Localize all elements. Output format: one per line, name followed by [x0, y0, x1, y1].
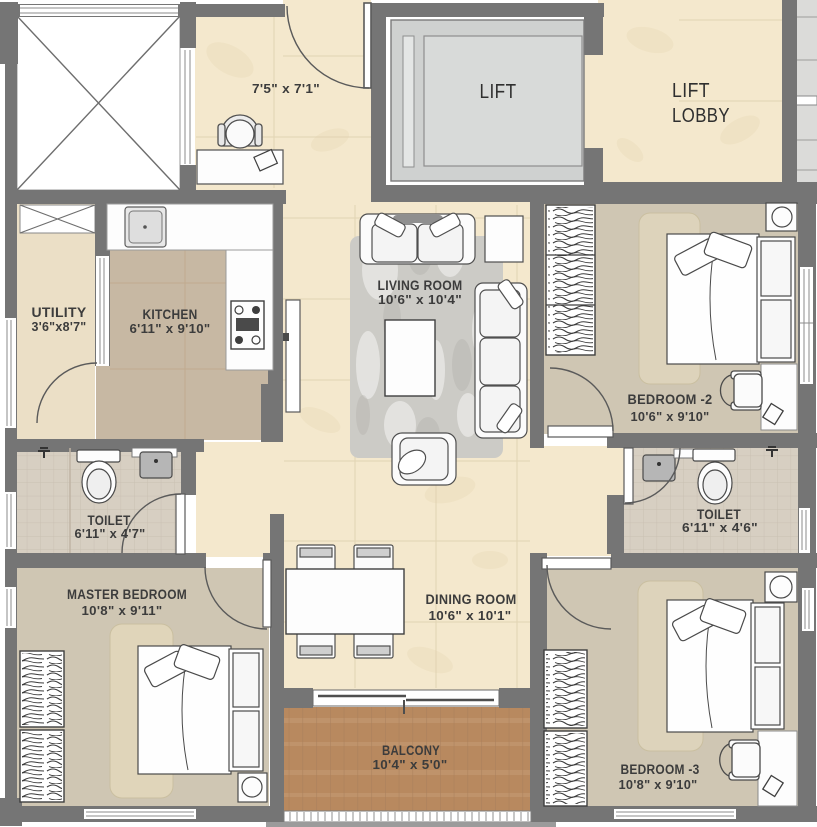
svg-text:LIVING ROOM: LIVING ROOM [378, 278, 463, 293]
svg-text:LIFT: LIFT [672, 80, 710, 102]
svg-text:BEDROOM -2: BEDROOM -2 [628, 392, 713, 407]
svg-text:MASTER BEDROOM: MASTER BEDROOM [67, 587, 187, 602]
svg-text:DINING ROOM: DINING ROOM [426, 592, 517, 607]
svg-text:6'11" x 9'10": 6'11" x 9'10" [130, 321, 211, 336]
svg-text:UTILITY: UTILITY [32, 305, 87, 320]
svg-text:7'5" x 7'1": 7'5" x 7'1" [252, 81, 320, 96]
svg-text:6'11" x 4'6": 6'11" x 4'6" [682, 520, 758, 535]
svg-text:10'8" x 9'10": 10'8" x 9'10" [619, 777, 698, 792]
svg-text:LIFT: LIFT [480, 81, 517, 103]
svg-text:6'11" x 4'7": 6'11" x 4'7" [75, 526, 146, 541]
svg-text:10'8" x 9'11": 10'8" x 9'11" [82, 603, 163, 618]
svg-text:10'6" x 9'10": 10'6" x 9'10" [631, 409, 710, 424]
svg-text:10'6" x 10'4": 10'6" x 10'4" [378, 292, 462, 307]
svg-text:10'6" x 10'1": 10'6" x 10'1" [429, 608, 512, 623]
svg-text:BEDROOM -3: BEDROOM -3 [621, 762, 700, 777]
svg-text:10'4" x 5'0": 10'4" x 5'0" [373, 757, 448, 772]
svg-text:LOBBY: LOBBY [672, 105, 730, 127]
svg-text:BALCONY: BALCONY [382, 743, 440, 758]
svg-text:3'6"x8'7": 3'6"x8'7" [32, 319, 87, 334]
svg-text:KITCHEN: KITCHEN [143, 307, 198, 322]
